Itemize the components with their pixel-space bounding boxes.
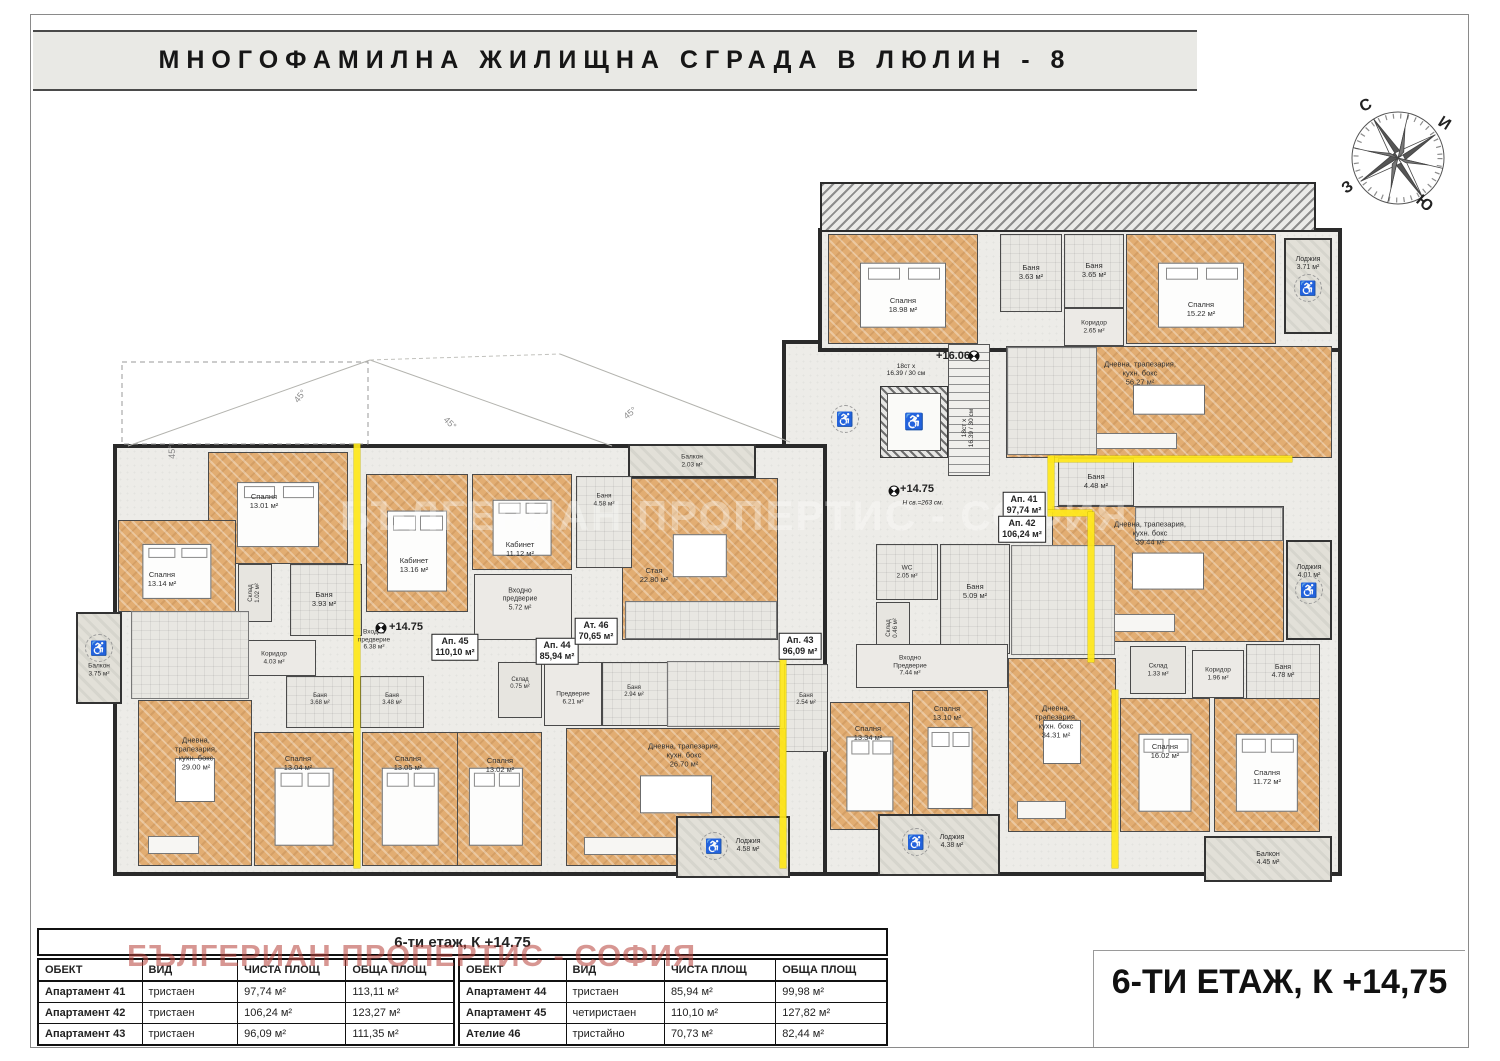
- table-cell: четиристаен: [566, 1003, 664, 1024]
- table-cell: Апартамент 45: [459, 1003, 566, 1024]
- apartment-boundary-line: [1088, 512, 1094, 662]
- table-cell: тристаен: [142, 981, 238, 1003]
- apartment-tag: Ап. 4485,94 м²: [536, 638, 579, 665]
- area-tables: 6-ти етаж, К +14.75 ОБЕКТВИДЧИСТА ПЛОЩОБ…: [37, 928, 888, 1046]
- table-cell: тристайно: [566, 1024, 664, 1046]
- wheelchair-icon: ♿: [1294, 274, 1322, 302]
- wheelchair-icon: ♿: [902, 828, 930, 856]
- roof-lines: [0, 0, 1500, 1061]
- apartment-boundary-line: [1048, 456, 1292, 462]
- table-header-cell: ЧИСТА ПЛОЩ: [664, 959, 775, 981]
- apartment-tag: Ап. 42106,24 м²: [998, 516, 1046, 543]
- table-cell: тристаен: [142, 1003, 238, 1024]
- apartment-boundary-line: [354, 444, 360, 868]
- table-header-cell: ОБЕКТ: [38, 959, 142, 981]
- table-cell: 96,09 м²: [238, 1024, 346, 1046]
- table-row: Апартамент 42тристаен106,24 м²123,27 м²: [38, 1003, 454, 1024]
- plan-note: +14.75: [389, 621, 423, 633]
- table-row: Апартамент 44тристаен85,94 м²99,98 м²: [459, 981, 887, 1003]
- table-cell: 106,24 м²: [238, 1003, 346, 1024]
- apartment-boundary-line: [780, 658, 786, 868]
- table-cell: Ателие 46: [459, 1024, 566, 1046]
- wheelchair-icon: ♿: [831, 405, 859, 433]
- table-cell: 97,74 м²: [238, 981, 346, 1003]
- table-header-cell: ОБЩА ПЛОЩ: [776, 959, 887, 981]
- table-row: Апартамент 43тристаен96,09 м²111,35 м²: [38, 1024, 454, 1046]
- table-cell: тристаен: [142, 1024, 238, 1046]
- right-area-table: ОБЕКТВИДЧИСТА ПЛОЩОБЩА ПЛОЩАпартамент 44…: [458, 958, 888, 1046]
- wheelchair-icon: ♿: [700, 832, 728, 860]
- table-row: Апартамент 45четиристаен110,10 м²127,82 …: [459, 1003, 887, 1024]
- plan-note: +14.75: [900, 483, 934, 495]
- apartment-tag: Ап. 45110,10 м²: [431, 634, 478, 661]
- wheelchair-icon: ♿: [1295, 576, 1323, 604]
- plan-note: 45°: [167, 445, 177, 459]
- elevator-shaft: ♿: [880, 386, 948, 458]
- plan-note: +16.06: [936, 350, 970, 362]
- table-cell: 123,27 м²: [346, 1003, 454, 1024]
- left-area-table: ОБЕКТВИДЧИСТА ПЛОЩОБЩА ПЛОЩАпартамент 41…: [37, 958, 455, 1046]
- plan-note: 18ст х 16.39 / 30 см: [961, 409, 975, 447]
- table-cell: тристаен: [566, 981, 664, 1003]
- apartment-boundary-line: [1048, 510, 1092, 516]
- floor-plan: ♿Спалня 18.98 м²Баня 3.63 м²Баня 3.65 м²…: [0, 0, 1500, 1061]
- table-cell: 110,10 м²: [664, 1003, 775, 1024]
- table-header-cell: ЧИСТА ПЛОЩ: [238, 959, 346, 981]
- table-header-cell: ВИД: [566, 959, 664, 981]
- wheelchair-icon: ♿: [85, 634, 113, 662]
- table-cell: Апартамент 43: [38, 1024, 142, 1046]
- table-header-cell: ВИД: [142, 959, 238, 981]
- table-cell: 85,94 м²: [664, 981, 775, 1003]
- plan-note: Н св.=263 см.: [903, 500, 944, 507]
- table-row: Апартамент 41тристаен97,74 м²113,11 м²: [38, 981, 454, 1003]
- apartment-boundary-line: [1112, 690, 1118, 868]
- table-cell: 82,44 м²: [776, 1024, 887, 1046]
- table-header-cell: ОБЩА ПЛОЩ: [346, 959, 454, 981]
- plan-note: 18ст х 16.39 / 30 см: [887, 363, 925, 377]
- wheelchair-icon: ♿: [887, 393, 941, 451]
- table-cell: 99,98 м²: [776, 981, 887, 1003]
- merged-table-header: 6-ти етаж, К +14.75: [37, 928, 888, 956]
- table-header-cell: ОБЕКТ: [459, 959, 566, 981]
- table-cell: Апартамент 41: [38, 981, 142, 1003]
- apartment-tag: Ап. 4197,74 м²: [1003, 492, 1046, 519]
- table-cell: Апартамент 44: [459, 981, 566, 1003]
- apartment-tag: Ап. 4396,09 м²: [779, 633, 822, 660]
- table-cell: 111,35 м²: [346, 1024, 454, 1046]
- table-row: Ателие 46тристайно70,73 м²82,44 м²: [459, 1024, 887, 1046]
- apartment-tag: Ат. 4670,65 м²: [575, 618, 618, 645]
- apartment-boundary-line: [1048, 456, 1054, 512]
- table-cell: Апартамент 42: [38, 1003, 142, 1024]
- table-cell: 127,82 м²: [776, 1003, 887, 1024]
- table-cell: 113,11 м²: [346, 981, 454, 1003]
- table-cell: 70,73 м²: [664, 1024, 775, 1046]
